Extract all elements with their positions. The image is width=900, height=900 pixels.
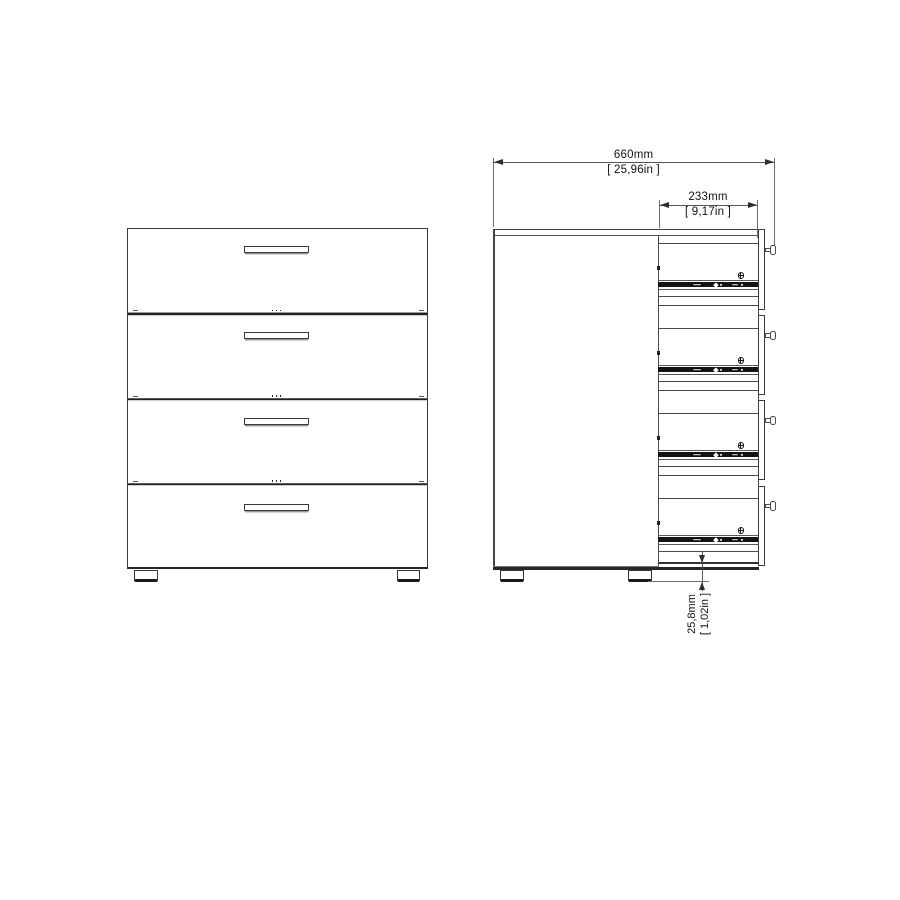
- slide-rail: [658, 367, 758, 372]
- rail-pin: [741, 454, 743, 456]
- foot: [628, 570, 652, 582]
- dimension-value-mm: 660mm: [584, 149, 684, 161]
- handle-cap: [770, 245, 776, 254]
- dimension-value-mm: 233mm: [658, 191, 758, 203]
- rail-detent: [657, 351, 660, 356]
- screw-icon: [738, 272, 745, 279]
- rail-latch: [713, 452, 718, 457]
- slide-rail: [658, 282, 758, 287]
- extension-line: [774, 158, 775, 246]
- dimension-line: [493, 162, 775, 163]
- rail-latch: [713, 367, 718, 372]
- divider-tick: [133, 481, 138, 482]
- compartment-top-line: [658, 498, 758, 499]
- foot: [134, 570, 158, 582]
- rail-latch: [713, 537, 718, 542]
- extension-line: [493, 158, 494, 227]
- slide-rail: [658, 537, 758, 542]
- rail-top-line: [658, 365, 758, 366]
- drawer-divider: [128, 312, 427, 316]
- rail-roller: [692, 538, 702, 542]
- drawer-front-edge: [758, 486, 765, 567]
- drawer-divider: [128, 483, 427, 487]
- rail-pin: [720, 454, 722, 456]
- drawer-handle: [244, 504, 309, 511]
- gap-line: [658, 305, 765, 306]
- drawer-handle: [244, 332, 309, 339]
- divider-dot: [272, 310, 274, 312]
- dimension-line: [659, 205, 757, 206]
- divider-tick: [133, 310, 138, 311]
- foot: [397, 570, 421, 582]
- dimension-value-in: [ 1,02in ]: [699, 588, 712, 640]
- arrow-down-icon: [699, 555, 705, 563]
- compartment-top-line: [658, 243, 758, 244]
- rail-roller: [692, 368, 702, 372]
- dimension-value-mm: 25,8mm: [686, 588, 699, 640]
- drawer-front-edge: [758, 229, 765, 311]
- rail-bottom-line: [658, 459, 758, 460]
- rail-bottom-line: [658, 289, 758, 290]
- divider-dot: [276, 395, 278, 397]
- rail-roller: [731, 453, 739, 457]
- rail-pin: [741, 539, 743, 541]
- divider-tick: [419, 310, 424, 311]
- top-panel: [493, 229, 759, 236]
- slide-rail: [658, 452, 758, 457]
- rail-bottom-line: [658, 544, 758, 545]
- rail-detent: [657, 521, 660, 526]
- divider-tick: [133, 396, 138, 397]
- drawer-bottom-line: [658, 381, 758, 382]
- rail-pin: [720, 284, 722, 286]
- rail-top-line: [658, 535, 758, 536]
- technical-drawing: 660mm [ 25,96in ] 233mm [ 9,17in ] 25,8m…: [0, 0, 900, 900]
- divider-dot: [272, 395, 274, 397]
- divider-tick: [419, 396, 424, 397]
- rail-bottom-line: [658, 374, 758, 375]
- drawer-bottom-line: [658, 551, 758, 552]
- back-panel-edge: [493, 229, 495, 570]
- handle-cap: [770, 416, 776, 425]
- dimension-value-in: [ 9,17in ]: [658, 206, 758, 218]
- divider-tick: [419, 481, 424, 482]
- rail-pin: [720, 539, 722, 541]
- divider-dot: [280, 310, 282, 312]
- drawer-front-edge: [758, 315, 765, 396]
- gap-line: [658, 475, 765, 476]
- handle-cap: [770, 331, 776, 340]
- rail-roller: [692, 283, 702, 287]
- gap-line: [658, 390, 765, 391]
- compartment-top-line: [658, 413, 758, 414]
- drawer-bottom-line: [658, 296, 758, 297]
- compartment-top-line: [658, 328, 758, 329]
- rail-roller: [731, 368, 739, 372]
- drawer-front-edge: [758, 400, 765, 480]
- divider-dot: [276, 310, 278, 312]
- drawer-handle: [244, 246, 309, 253]
- divider-dot: [280, 480, 282, 482]
- handle-cap: [770, 501, 776, 510]
- arrow-right-icon: [765, 159, 774, 165]
- divider-dot: [276, 480, 278, 482]
- drawer-bottom-line: [658, 466, 758, 467]
- rail-top-line: [658, 450, 758, 451]
- rail-pin: [720, 369, 722, 371]
- foot: [500, 570, 524, 582]
- dimension-value-in: [ 25,96in ]: [584, 164, 684, 176]
- drawer-divider: [128, 398, 427, 402]
- rail-top-line: [658, 280, 758, 281]
- rail-detent: [657, 266, 660, 271]
- dimension-rotated-label: 25,8mm [ 1,02in ]: [686, 588, 712, 640]
- screw-icon: [738, 442, 745, 449]
- rail-pin: [741, 369, 743, 371]
- divider-dot: [272, 480, 274, 482]
- bottom-edge: [493, 567, 759, 569]
- drawer-handle: [244, 418, 309, 425]
- cavity-bottom-line: [658, 562, 758, 564]
- rail-roller: [731, 283, 739, 287]
- divider-dot: [280, 395, 282, 397]
- rail-detent: [657, 436, 660, 441]
- rail-pin: [741, 284, 743, 286]
- screw-icon: [738, 357, 745, 364]
- rail-roller: [731, 538, 739, 542]
- rail-latch: [713, 282, 718, 287]
- rail-roller: [692, 453, 702, 457]
- arrow-left-icon: [494, 159, 503, 165]
- screw-icon: [738, 527, 745, 534]
